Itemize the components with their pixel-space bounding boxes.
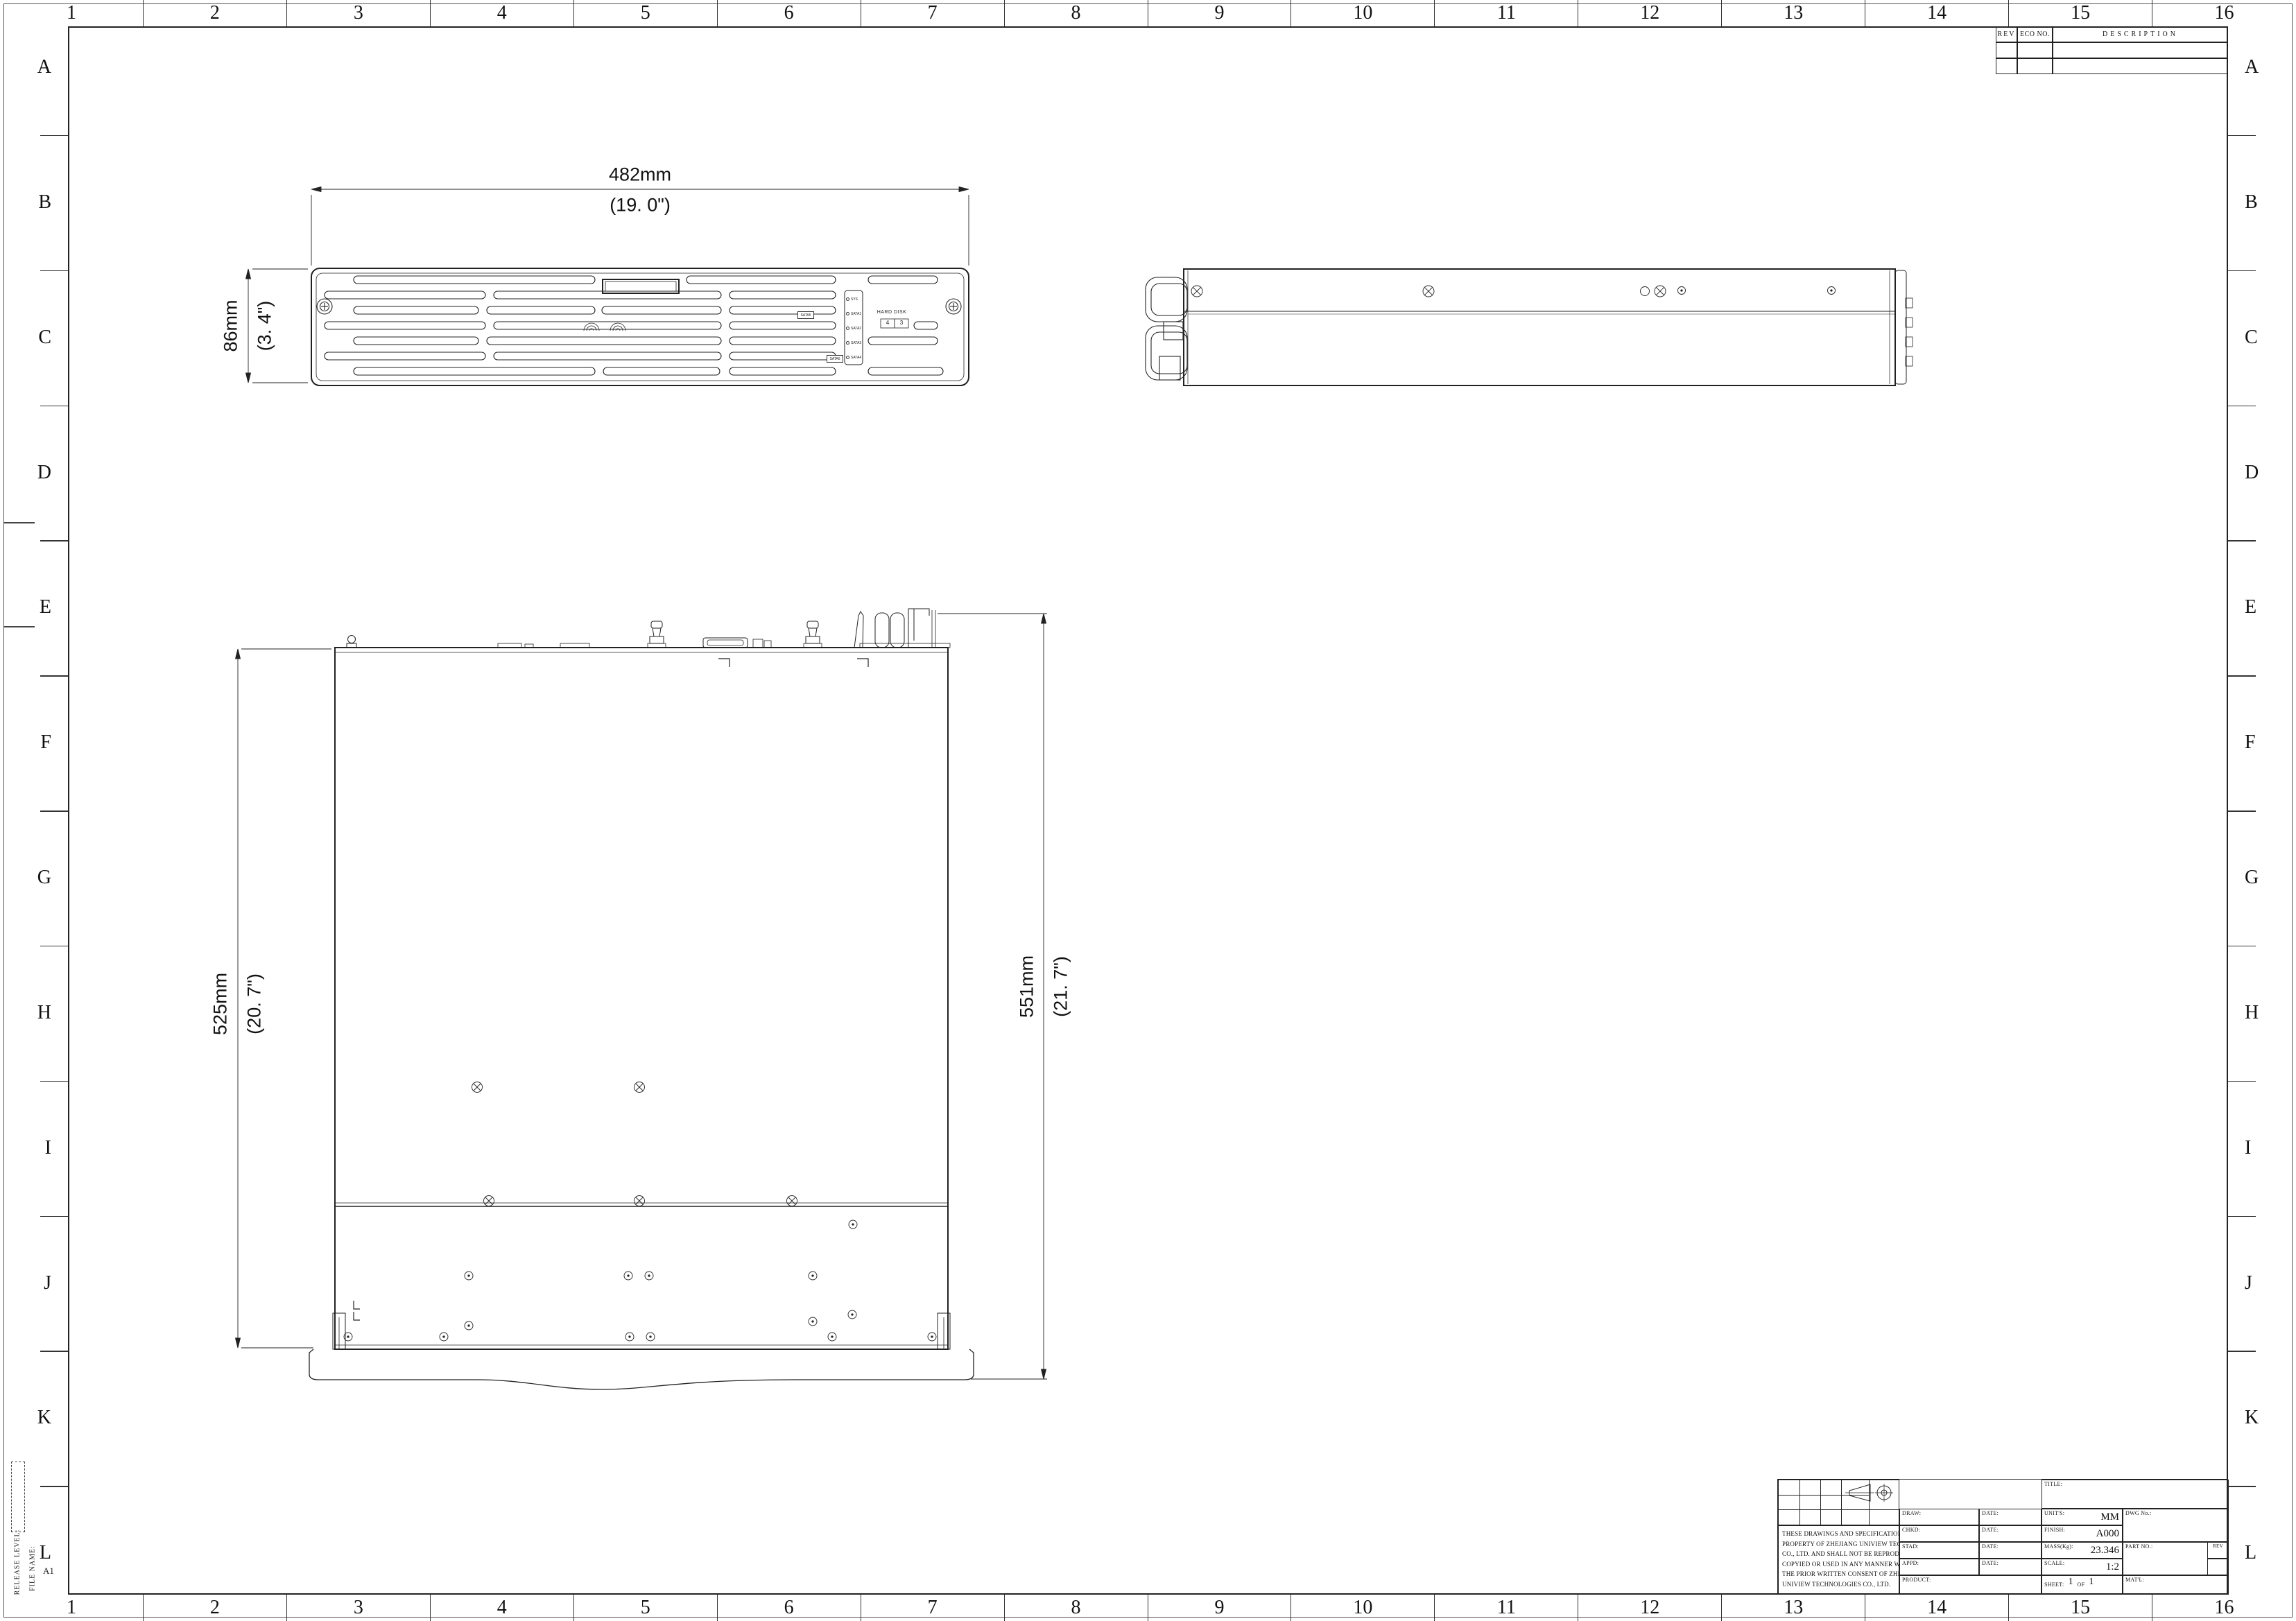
zone-tick-right: [2228, 1081, 2256, 1082]
sheet-field: SHEET:1OF1: [2042, 1575, 2123, 1595]
third-angle-projection-icon: [1844, 1482, 1898, 1508]
notice-line: PROPERTY OF ZHEJIANG UNIVIEW TECHNOLOGIE…: [1782, 1539, 1895, 1550]
led-dot-icon: [846, 327, 849, 330]
notice-line: THE PRIOR WRITTEN CONSENT OF ZHEJIANG: [1782, 1569, 1895, 1579]
vent-slot: [602, 306, 721, 314]
stad-field: STAD:: [1899, 1542, 1979, 1559]
rev-value-cell: [2207, 1559, 2229, 1575]
vent-slot: [730, 352, 836, 360]
vent-slot: [354, 337, 478, 345]
zone-tick-left: [40, 675, 68, 677]
date-field: DATE:: [1979, 1542, 2042, 1559]
led-row: SATA4: [846, 350, 863, 365]
vent-slot: [487, 306, 595, 314]
led-dot-icon: [846, 356, 849, 359]
dim-total-depth-mm: 551mm: [1017, 955, 1038, 1018]
finish-field: FINISH:A000: [2042, 1525, 2123, 1542]
zone-tick-left: [40, 1216, 68, 1217]
zone-tick-left: [40, 406, 68, 407]
zone-tick-right: [2228, 1486, 2256, 1487]
led-dot-icon: [846, 297, 849, 301]
vent-slot: [325, 322, 485, 329]
led-label: SATA1: [851, 312, 861, 316]
side-view: [1146, 269, 1913, 385]
description-header: DESCRIPTION: [2053, 26, 2228, 42]
hard-disk-label: HARD DISK: [868, 310, 915, 315]
dim-width-mm: 482mm: [609, 164, 671, 186]
notice-line: THESE DRAWINGS AND SPECIFICATION ARE THE: [1782, 1529, 1895, 1539]
vent-slot: [730, 367, 836, 375]
vent-slot: [325, 352, 485, 360]
led-label: SYS: [851, 297, 858, 302]
tray-sticker: SATA5: [797, 311, 814, 319]
zone-tick-left: [40, 135, 68, 137]
zone-tick-right: [2228, 406, 2256, 407]
engineering-drawing-canvas: [0, 0, 2296, 1621]
notice-line: CO., LTD. AND SHALL NOT BE REPRODUCED: [1782, 1549, 1895, 1559]
disk-number-3: 3: [895, 319, 908, 328]
rev-row-cell: [2017, 58, 2053, 74]
led-label: SATA2: [851, 327, 861, 331]
zone-tick-right: [2228, 540, 2256, 541]
zone-tick-left: [40, 1081, 68, 1082]
led-dot-icon: [846, 312, 849, 315]
disk-number-4: 4: [881, 319, 895, 328]
zone-tick-right: [2228, 675, 2256, 677]
date-field: DATE:: [1979, 1559, 2042, 1575]
title-block-grid: [1778, 1480, 1899, 1525]
zone-tick-left: [40, 946, 68, 947]
appd-field: APPD:: [1899, 1559, 1979, 1575]
zone-tick-right: [2228, 946, 2256, 947]
tray-sticker: SATA6: [827, 355, 843, 363]
vent-slot: [354, 367, 595, 375]
led-row: SYS: [846, 292, 863, 306]
top-view: [309, 609, 974, 1389]
dim-height-mm: 86mm: [221, 300, 242, 352]
screw-hole-icon: [1641, 287, 1650, 296]
proprietary-notice: THESE DRAWINGS AND SPECIFICATION ARE THE…: [1778, 1525, 1899, 1595]
led-label: SATA3: [851, 341, 861, 345]
vent-slot: [603, 367, 720, 375]
led-row: SATA2: [846, 321, 863, 336]
led-indicator-strip: SYSSATA1SATA2SATA3SATA4: [846, 292, 863, 365]
vent-slot: [354, 276, 595, 284]
vent-slot: [868, 337, 938, 345]
chkd-field: CHKD:: [1899, 1525, 1979, 1542]
dim-width-in: (19. 0"): [610, 195, 671, 216]
rev-row-cell: [2053, 42, 2228, 58]
vent-slot: [868, 276, 938, 284]
vent-slot: [914, 322, 938, 329]
matl-field: MAT'L:: [2123, 1575, 2229, 1595]
drawing-sheet: 12345678910111213141516 1234567891011121…: [0, 0, 2296, 1621]
notice-line: COPYIED OR USED IN ANY MANNER WITHOUT: [1782, 1559, 1895, 1570]
draw-field: DRAW:: [1899, 1509, 1979, 1525]
front-view: [311, 268, 969, 385]
zone-tick-left: [40, 270, 68, 272]
rev-row-cell: [2053, 58, 2228, 74]
eco-no-header: ECO NO.: [2017, 26, 2053, 42]
dim-body-depth-in: (20. 7"): [244, 973, 266, 1034]
date-field: DATE:: [1979, 1509, 2042, 1525]
vent-slot: [730, 306, 836, 314]
vent-slot: [730, 322, 836, 329]
zone-tick-left: [40, 1486, 68, 1487]
vent-slot: [730, 291, 836, 299]
zone-tick-right: [2228, 135, 2256, 137]
vent-slot: [487, 337, 721, 345]
vent-slot: [494, 322, 721, 329]
product-field: PRODUCT:: [1899, 1575, 2042, 1595]
vent-slot: [868, 367, 943, 375]
dim-body-depth-mm: 525mm: [210, 973, 232, 1035]
mass-field: MASS(Kg):23.346: [2042, 1542, 2123, 1559]
led-row: SATA3: [846, 336, 863, 350]
zone-tick-right: [2228, 1216, 2256, 1217]
led-row: SATA1: [846, 306, 863, 321]
revision-table: REV ECO NO. DESCRIPTION: [1996, 26, 2228, 74]
rev-row-cell: [1996, 42, 2017, 58]
dim-total-depth-in: (21. 7"): [1051, 956, 1072, 1017]
rev-row-cell: [1996, 58, 2017, 74]
dwg-no-field: DWG No.:: [2123, 1509, 2229, 1542]
zone-tick-right: [2228, 810, 2256, 812]
rev-row-cell: [2017, 42, 2053, 58]
vent-slot: [494, 352, 721, 360]
vent-slot: [354, 306, 478, 314]
zone-tick-left: [40, 810, 68, 812]
scale-field: SCALE:1:2: [2042, 1559, 2123, 1575]
zone-tick-left: [40, 1351, 68, 1352]
rev-field: REV: [2207, 1542, 2229, 1559]
title-field: TITLE:: [2042, 1480, 2229, 1509]
zone-tick-right: [2228, 1351, 2256, 1352]
dim-height-in: (3. 4"): [254, 301, 276, 352]
zone-tick-right: [2228, 270, 2256, 272]
zone-tick-left: [40, 540, 68, 541]
vent-slot: [730, 337, 836, 345]
vent-slot: [325, 291, 485, 299]
vent-slot: [687, 276, 836, 284]
notice-line: UNIVIEW TECHNOLOGIES CO., LTD.: [1782, 1579, 1895, 1590]
title-block: THESE DRAWINGS AND SPECIFICATION ARE THE…: [1777, 1479, 2228, 1594]
units-field: UNIT'S:MM: [2042, 1509, 2123, 1525]
rev-header: REV: [1996, 26, 2017, 42]
led-dot-icon: [846, 341, 849, 345]
led-label: SATA4: [851, 356, 861, 360]
date-field: DATE:: [1979, 1525, 2042, 1542]
